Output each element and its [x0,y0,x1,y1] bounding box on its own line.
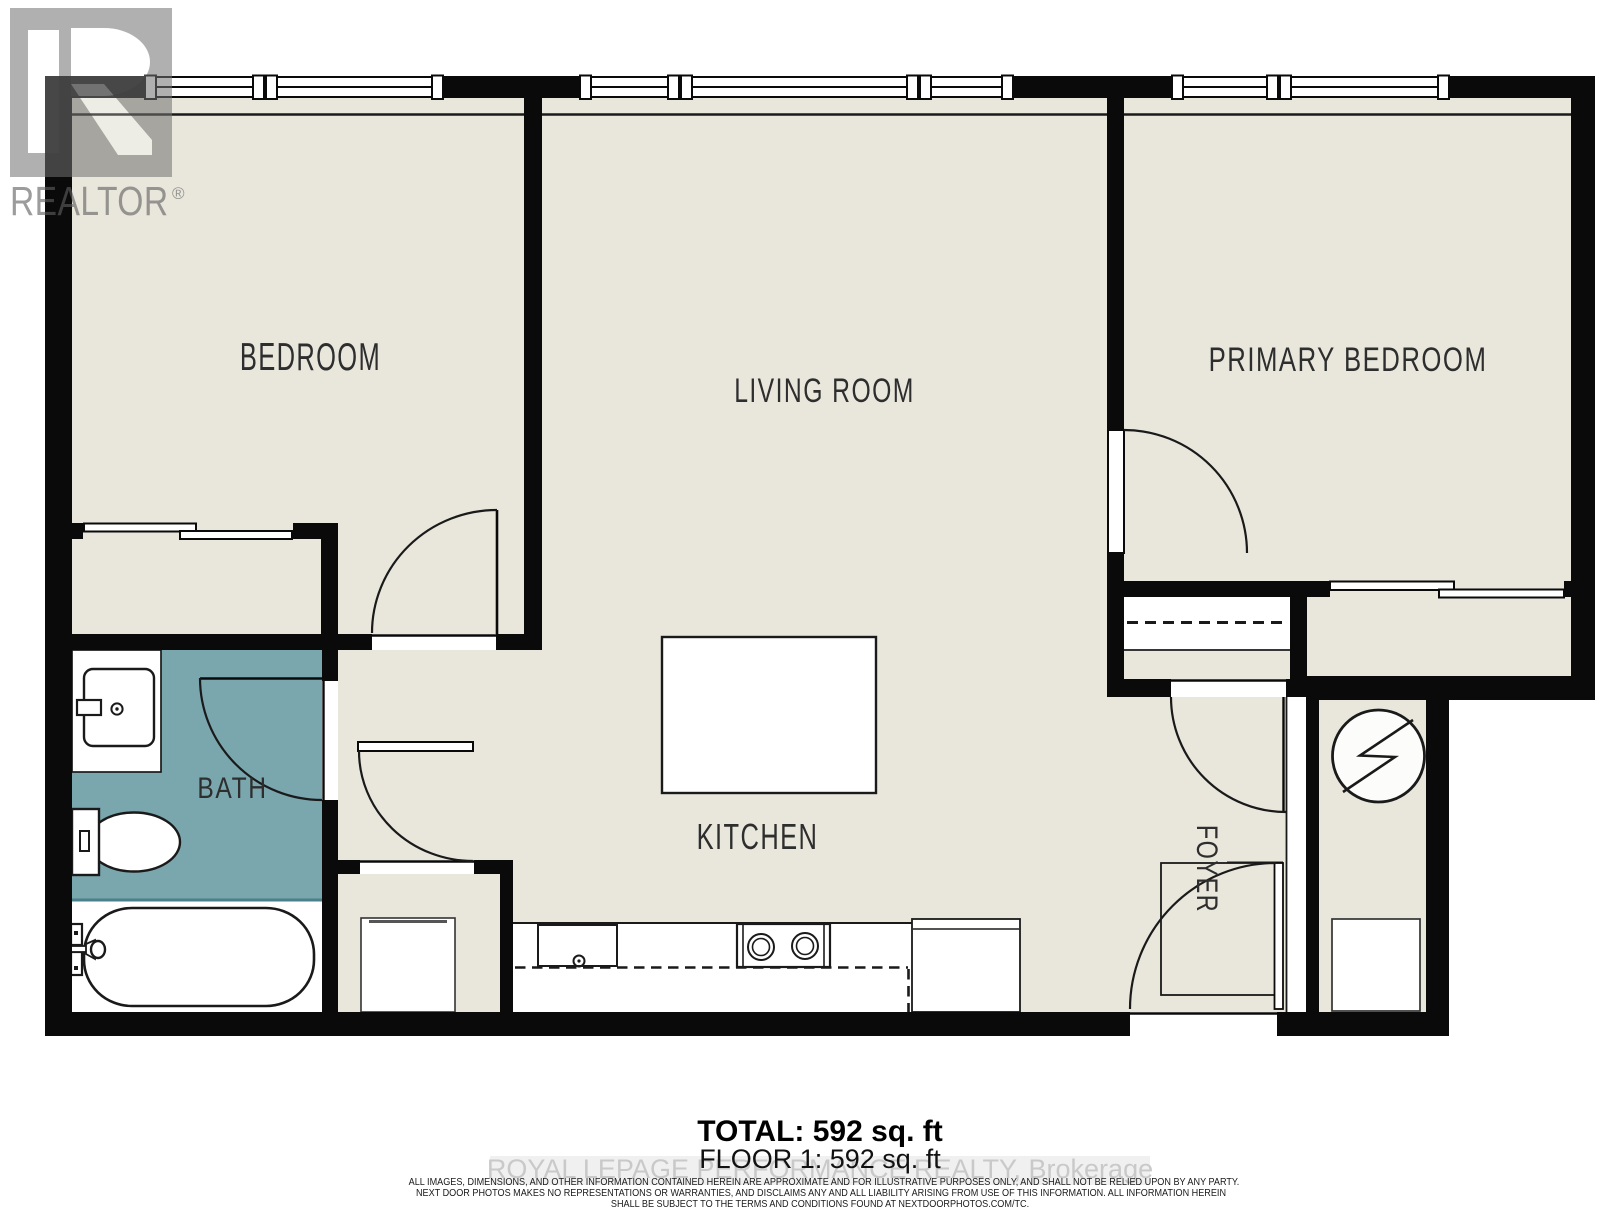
svg-text:BATH: BATH [197,771,267,805]
svg-text:SHALL BE SUBJECT TO THE TERMS: SHALL BE SUBJECT TO THE TERMS AND CONDIT… [611,1198,1029,1210]
svg-text:®: ® [172,184,185,203]
svg-text:LIVING ROOM: LIVING ROOM [734,372,915,410]
svg-text:FLOOR 1: 592 sq. ft: FLOOR 1: 592 sq. ft [699,1144,941,1174]
svg-text:BEDROOM: BEDROOM [240,335,381,379]
svg-text:KITCHEN: KITCHEN [697,817,819,857]
svg-text:PRIMARY BEDROOM: PRIMARY BEDROOM [1209,340,1488,379]
svg-text:NEXT DOOR PHOTOS MAKES NO REPR: NEXT DOOR PHOTOS MAKES NO REPRESENTATION… [416,1187,1226,1199]
svg-text:FOYER: FOYER [1190,825,1223,913]
svg-text:ALL IMAGES, DIMENSIONS, AND OT: ALL IMAGES, DIMENSIONS, AND OTHER INFORM… [409,1176,1240,1188]
svg-text:REALTOR: REALTOR [10,178,169,224]
